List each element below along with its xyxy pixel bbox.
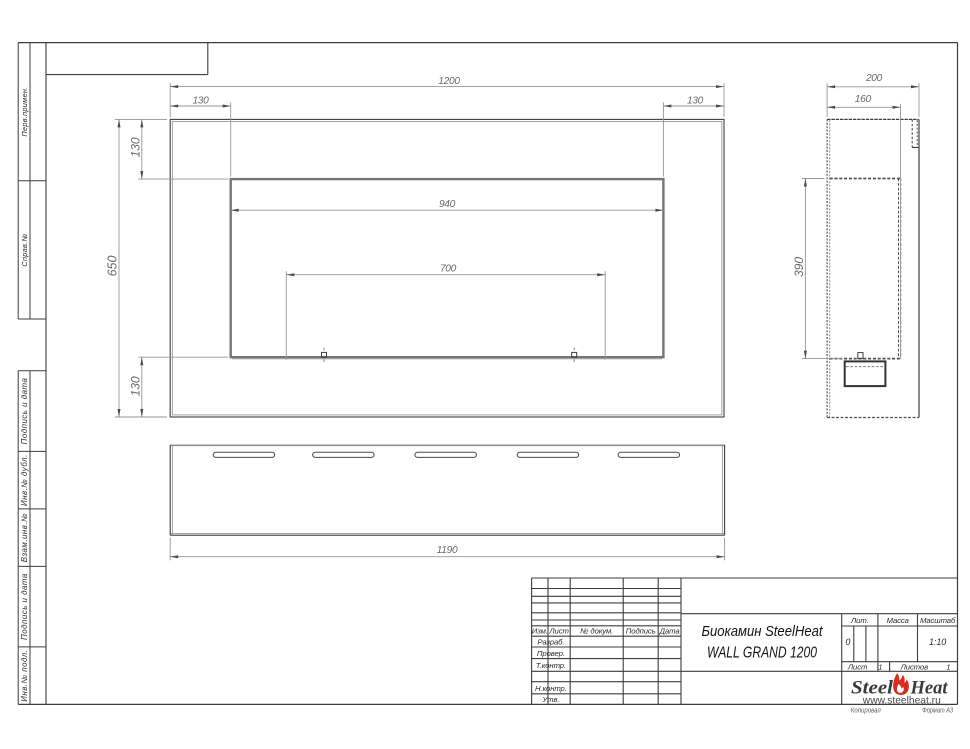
svg-text:Масштаб: Масштаб <box>920 616 956 625</box>
svg-text:Биокамин SteelHeat: Биокамин SteelHeat <box>702 623 824 640</box>
svg-text:Взам.инв.№: Взам.инв.№ <box>20 513 29 562</box>
svg-text:Инв.№ подл.: Инв.№ подл. <box>20 649 29 701</box>
svg-text:650: 650 <box>106 256 120 277</box>
svg-text:1:10: 1:10 <box>929 637 946 647</box>
svg-text:Подпись и дата: Подпись и дата <box>20 573 29 640</box>
svg-text:Подпись: Подпись <box>626 627 656 636</box>
svg-text:1: 1 <box>878 663 882 672</box>
svg-text:1200: 1200 <box>438 76 460 87</box>
svg-text:Листов: Листов <box>900 663 928 672</box>
svg-text:Т.контр.: Т.контр. <box>536 661 566 670</box>
svg-text:Н.контр.: Н.контр. <box>535 684 567 693</box>
svg-text:160: 160 <box>855 94 872 105</box>
svg-text:Копировал: Копировал <box>851 705 881 714</box>
svg-text:Дата: Дата <box>659 627 681 636</box>
svg-text:200: 200 <box>865 73 883 84</box>
svg-text:940: 940 <box>439 199 456 210</box>
svg-text:Лист: Лист <box>548 627 569 636</box>
svg-text:Изм.: Изм. <box>532 627 548 636</box>
svg-text:Масса: Масса <box>887 616 910 625</box>
svg-text:Подпись и дата: Подпись и дата <box>20 378 29 445</box>
svg-text:1: 1 <box>946 663 950 672</box>
svg-text:Инв.№ дубл.: Инв.№ дубл. <box>20 454 29 506</box>
svg-text:130: 130 <box>128 376 142 396</box>
svg-text:130: 130 <box>192 96 209 107</box>
svg-text:Справ.№: Справ.№ <box>20 233 29 266</box>
svg-text:Лист: Лист <box>847 663 868 672</box>
svg-text:WALL GRAND 1200: WALL GRAND 1200 <box>707 644 817 661</box>
svg-text:Перв.примен.: Перв.примен. <box>20 87 29 137</box>
svg-text:130: 130 <box>687 96 704 107</box>
svg-text:Разраб.: Разраб. <box>537 638 564 647</box>
svg-text:Утв.: Утв. <box>541 695 559 704</box>
svg-text:Формат А3: Формат А3 <box>922 705 953 714</box>
svg-text:Провер.: Провер. <box>537 649 565 658</box>
svg-text:700: 700 <box>440 264 457 275</box>
svg-text:130: 130 <box>128 137 142 157</box>
svg-text:Лит.: Лит. <box>850 616 869 625</box>
svg-text:0: 0 <box>845 637 850 647</box>
svg-text:1190: 1190 <box>437 545 458 556</box>
svg-text:№ докум.: № докум. <box>580 627 613 636</box>
svg-text:390: 390 <box>792 257 806 277</box>
